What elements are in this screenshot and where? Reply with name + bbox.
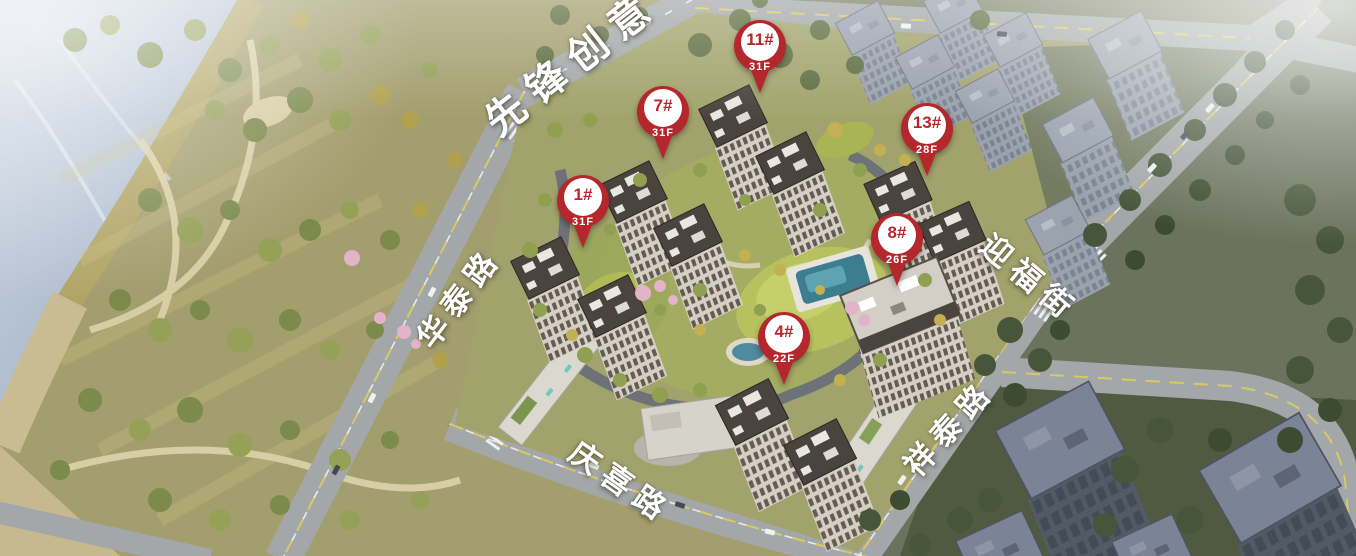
marker-building-number: 13# [900, 113, 954, 133]
marker-floor-count: 28F [900, 144, 954, 156]
marker-building-number: 7# [636, 96, 690, 116]
marker-overlay: 先锋创意华泰路迎福街庆喜路祥泰路 1# 31F 7# 31F 11# 31F 1… [0, 0, 1356, 556]
marker-building-number: 1# [556, 185, 610, 205]
building-marker-4[interactable]: 4# 22F [757, 312, 811, 390]
building-marker-8[interactable]: 8# 26F [870, 213, 924, 291]
building-marker-7[interactable]: 7# 31F [636, 86, 690, 164]
marker-building-number: 8# [870, 223, 924, 243]
aerial-site-map: 先锋创意华泰路迎福街庆喜路祥泰路 1# 31F 7# 31F 11# 31F 1… [0, 0, 1356, 556]
building-marker-13[interactable]: 13# 28F [900, 103, 954, 181]
road-label-祥泰路: 祥泰路 [891, 367, 1003, 484]
marker-floor-count: 31F [733, 61, 787, 73]
building-marker-11[interactable]: 11# 31F [733, 20, 787, 98]
road-label-庆喜路: 庆喜路 [561, 428, 683, 532]
marker-building-number: 11# [733, 30, 787, 50]
marker-floor-count: 22F [757, 353, 811, 365]
marker-floor-count: 31F [556, 216, 610, 228]
building-marker-1[interactable]: 1# 31F [556, 175, 610, 253]
marker-building-number: 4# [757, 322, 811, 342]
marker-floor-count: 26F [870, 254, 924, 266]
marker-floor-count: 31F [636, 127, 690, 139]
road-label-华泰路: 华泰路 [404, 236, 510, 357]
road-label-迎福街: 迎福街 [972, 221, 1091, 331]
